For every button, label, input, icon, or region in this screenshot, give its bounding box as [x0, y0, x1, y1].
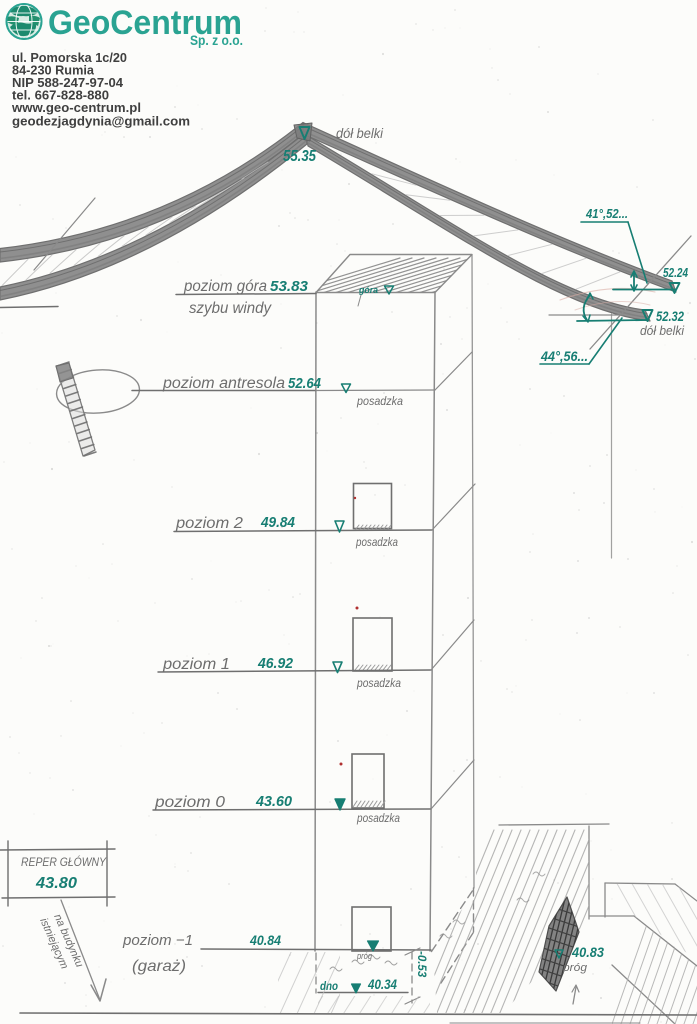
- svg-text:próg: próg: [562, 962, 588, 974]
- svg-text:poziom 1: poziom 1: [162, 656, 230, 673]
- svg-text:poziom 0: poziom 0: [154, 794, 226, 811]
- svg-text:dno: dno: [320, 981, 338, 993]
- svg-text:posadzka: posadzka: [356, 394, 403, 408]
- svg-text:43.60: 43.60: [255, 793, 293, 810]
- svg-text:dół belki: dół belki: [640, 323, 685, 338]
- svg-text:43.80: 43.80: [35, 875, 77, 892]
- svg-text:55.35: 55.35: [283, 148, 317, 165]
- svg-text:szybu windy: szybu windy: [189, 300, 272, 317]
- svg-text:52.64: 52.64: [288, 375, 322, 392]
- svg-text:40.83: 40.83: [571, 944, 604, 960]
- svg-text:46.92: 46.92: [257, 655, 294, 672]
- svg-text:52.24: 52.24: [663, 266, 688, 280]
- svg-text:posadzka: posadzka: [356, 676, 401, 690]
- svg-text:poziom antresola: poziom antresola: [162, 375, 285, 392]
- svg-text:www.geo-centrum.pl: www.geo-centrum.pl: [11, 101, 141, 115]
- svg-text:REPER GŁÓWNY: REPER GŁÓWNY: [21, 854, 107, 869]
- svg-text:poziom −1: poziom −1: [122, 932, 193, 949]
- svg-text:-0.53: -0.53: [415, 951, 427, 978]
- svg-text:geodezjagdynia@gmail.com: geodezjagdynia@gmail.com: [12, 115, 190, 129]
- svg-text:posadzka: posadzka: [356, 811, 400, 825]
- svg-text:41°,52...: 41°,52...: [585, 206, 628, 221]
- svg-text:dół belki: dół belki: [336, 126, 384, 141]
- svg-text:poziom góra: poziom góra: [183, 278, 267, 295]
- svg-text:52.32: 52.32: [656, 309, 684, 324]
- svg-text:49.84: 49.84: [260, 514, 295, 531]
- svg-text:Sp. z o.o.: Sp. z o.o.: [190, 33, 243, 48]
- svg-text:posadzka: posadzka: [355, 535, 398, 549]
- svg-text:poziom 2: poziom 2: [175, 515, 243, 532]
- svg-text:próg: próg: [356, 951, 372, 962]
- svg-text:40.84: 40.84: [249, 932, 281, 948]
- svg-text:40.34: 40.34: [367, 976, 397, 992]
- svg-text:góra: góra: [358, 285, 378, 296]
- svg-text:53.83: 53.83: [270, 278, 309, 295]
- svg-text:(garaż): (garaż): [132, 958, 186, 975]
- svg-text:44°,56...: 44°,56...: [540, 348, 588, 364]
